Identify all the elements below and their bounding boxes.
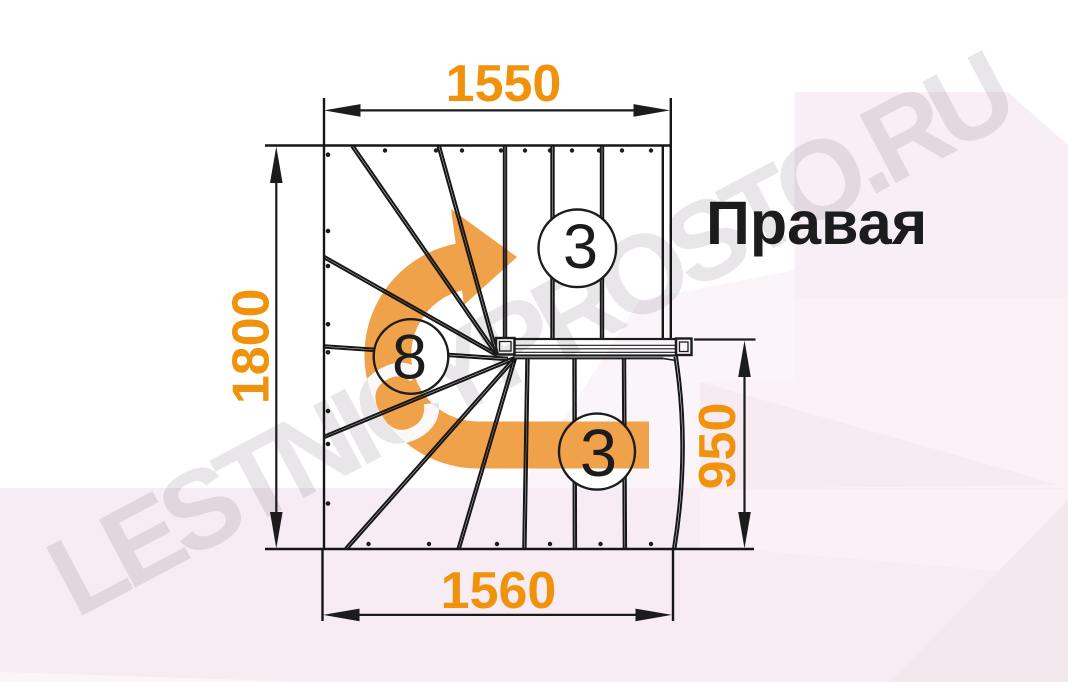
svg-text:8: 8: [392, 323, 427, 393]
svg-text:Правая: Правая: [706, 189, 927, 257]
svg-text:3: 3: [563, 212, 598, 282]
svg-text:1550: 1550: [446, 55, 562, 113]
svg-text:3: 3: [580, 416, 617, 491]
svg-text:1560: 1560: [441, 562, 557, 620]
svg-text:1800: 1800: [223, 288, 281, 404]
svg-text:950: 950: [689, 403, 747, 490]
